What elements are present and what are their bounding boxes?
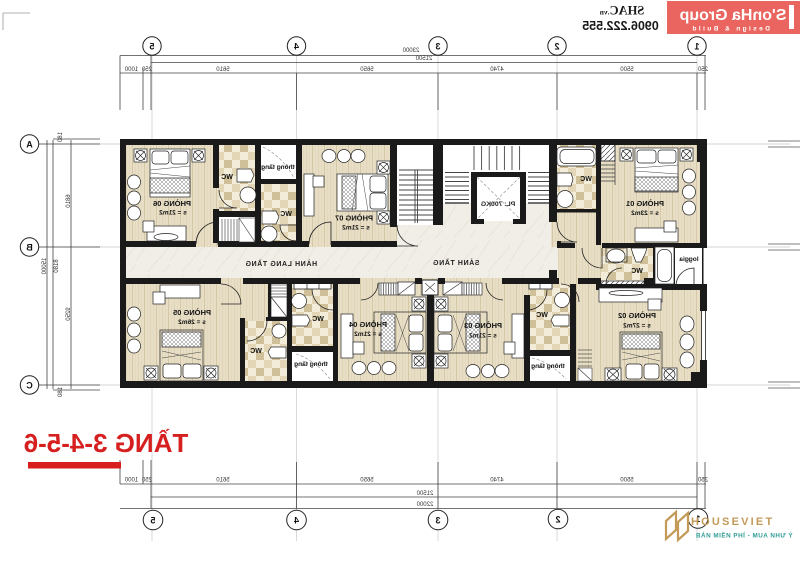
svg-text:22000: 22000	[416, 502, 433, 508]
svg-text:3: 3	[435, 42, 440, 52]
svg-text:180: 180	[58, 387, 64, 398]
svg-text:5: 5	[150, 516, 155, 526]
svg-text:s = 26m2: s = 26m2	[178, 319, 206, 326]
svg-text:loggia: loggia	[679, 256, 699, 263]
svg-text:5610: 5610	[216, 478, 230, 484]
svg-text:WC: WC	[536, 312, 548, 319]
svg-text:WC: WC	[580, 176, 592, 183]
svg-text:4740: 4740	[490, 478, 504, 484]
svg-text:PHÒNG 05: PHÒNG 05	[173, 308, 211, 317]
svg-text:s = 21m2: s = 21m2	[159, 210, 187, 217]
svg-text:2: 2	[554, 42, 559, 52]
svg-text:thông tầng: thông tầng	[294, 359, 328, 368]
svg-text:s = 27m2: s = 27m2	[623, 323, 651, 330]
svg-text:Design & Build: Design & Build	[690, 26, 770, 33]
svg-text:5500: 5500	[620, 478, 634, 484]
svg-text:250: 250	[697, 67, 708, 73]
svg-text:15000: 15000	[42, 258, 48, 275]
svg-text:WC: WC	[631, 268, 643, 275]
svg-text:6810: 6810	[66, 194, 72, 208]
svg-text:0906.222.555: 0906.222.555	[582, 19, 659, 33]
svg-text:4740: 4740	[490, 67, 504, 73]
svg-text:PHÒNG 06: PHÒNG 06	[153, 199, 191, 208]
svg-text:250: 250	[697, 478, 708, 484]
svg-text:4: 4	[294, 42, 299, 52]
svg-text:5650: 5650	[360, 478, 374, 484]
svg-text:PHÒNG 07: PHÒNG 07	[335, 214, 373, 223]
svg-text:WC: WC	[280, 211, 292, 218]
svg-text:WC: WC	[312, 316, 324, 323]
svg-text:A: A	[26, 140, 33, 150]
svg-text:s = 21m2: s = 21m2	[469, 333, 497, 340]
svg-text:PHÒNG 02: PHÒNG 02	[618, 311, 656, 320]
svg-text:B: B	[26, 243, 33, 253]
svg-text:5: 5	[149, 42, 154, 52]
svg-text:5650: 5650	[360, 67, 374, 73]
svg-text:s = 21m2: s = 21m2	[354, 331, 382, 338]
svg-text:PL: 700KG: PL: 700KG	[481, 201, 515, 208]
svg-text:PHÒNG 01: PHÒNG 01	[626, 199, 664, 208]
svg-text:250: 250	[141, 478, 152, 484]
svg-text:250: 250	[141, 67, 152, 73]
svg-text:2: 2	[555, 515, 560, 525]
svg-text:s = 23m2: s = 23m2	[631, 210, 659, 217]
svg-text:HOUSEVIET: HOUSEVIET	[691, 516, 774, 528]
svg-text:21500: 21500	[415, 56, 432, 62]
svg-text:WC: WC	[221, 174, 233, 181]
svg-text:thông tầng: thông tầng	[531, 361, 565, 370]
svg-text:4: 4	[294, 516, 299, 526]
svg-text:8180: 8180	[54, 259, 60, 273]
svg-text:5500: 5500	[620, 67, 634, 73]
svg-text:thông tầng: thông tầng	[261, 162, 295, 171]
svg-text:9250: 9250	[66, 307, 72, 321]
svg-text:WC: WC	[250, 348, 262, 355]
svg-text:5610: 5610	[216, 67, 230, 73]
svg-text:1000: 1000	[124, 67, 138, 73]
svg-text:1000: 1000	[124, 478, 138, 484]
svg-text:23000: 23000	[402, 48, 419, 54]
svg-text:s = 21m2: s = 21m2	[342, 225, 370, 232]
svg-text:PHÒNG 03: PHÒNG 03	[464, 321, 502, 330]
svg-text:21500: 21500	[416, 491, 433, 497]
svg-text:180: 180	[58, 132, 64, 143]
svg-text:TẦNG 3-4-5-6: TẦNG 3-4-5-6	[24, 428, 189, 458]
svg-text:PHÒNG 04: PHÒNG 04	[348, 320, 387, 329]
svg-text:C: C	[26, 381, 33, 391]
svg-text:3: 3	[435, 516, 440, 526]
svg-text:S'onHa Group: S'onHa Group	[679, 7, 786, 24]
svg-text:1: 1	[694, 42, 699, 52]
